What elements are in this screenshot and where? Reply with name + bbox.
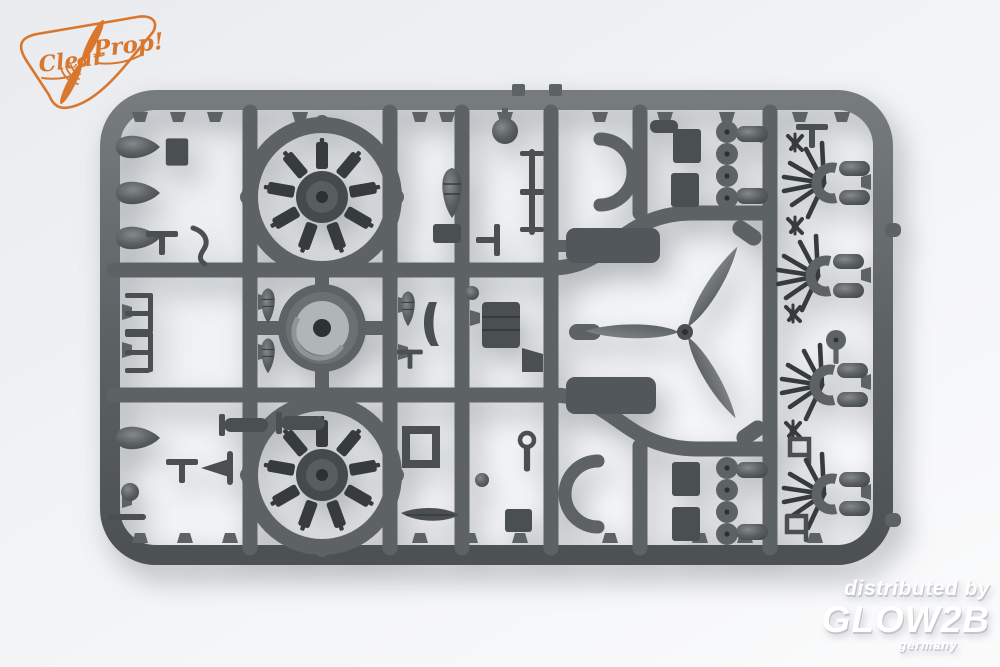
part-cowling-ring [252,266,392,396]
photo-scene: Clear Prop! [0,0,1000,667]
part-capsule [736,524,768,540]
distributor-watermark: distributed by GLOW2B germany [822,578,990,652]
part-square-plate [672,507,700,541]
frame-tab [512,84,525,96]
parts-wheel-column-top [671,121,768,209]
part-jack [786,305,800,322]
parts-right-column [778,124,870,540]
part-wheel-disc [716,121,738,143]
part-capsule [736,462,768,478]
part-square-plate [673,129,701,163]
part-jack [788,134,802,151]
part-teardrop-tank [116,227,160,249]
part-capsule [736,188,768,204]
part-disc-on-stem [826,330,846,364]
part-wheel-disc [716,523,738,545]
part-key-lever [520,433,534,471]
part-square-plate [671,173,699,207]
part-disc-on-stem [492,108,518,144]
part-wedge [522,348,543,372]
part-teardrop-tank [116,136,160,158]
part-exhaust-spider [782,345,868,419]
parts-wheel-column-bottom [672,457,768,545]
part-wheel-disc [716,479,738,501]
part-rod [108,514,146,520]
part-ball-peg [121,483,139,501]
part-curved-rod [193,228,206,264]
part-wheel-disc [716,457,738,479]
part-e-rail [125,293,153,334]
frame-tab [549,84,562,96]
part-t-bracket [476,224,500,256]
part-wheel-disc [716,165,738,187]
watermark-country: germany [822,639,990,652]
part-cowl-panels [553,228,660,414]
part-small-bomb [401,291,415,326]
part-ball-peg [475,473,489,487]
part-e-rail [125,332,153,373]
part-cowl-flap [424,302,439,346]
part-teardrop-tank [116,182,160,204]
part-small-bomb [261,338,275,373]
part-exhaust-spider [784,143,870,217]
parts-top-left [116,136,206,264]
part-wheel-disc [716,501,738,523]
part-wheel-disc [716,187,738,209]
watermark-brand: GLOW2B [822,601,990,638]
part-box [505,509,532,532]
part-hull-fairing [401,508,459,521]
part-half-ring-right [565,461,598,527]
part-t-bracket [166,459,198,483]
part-small-plate [166,138,188,165]
parts-bottom-middle [401,426,598,532]
part-jack [788,217,802,234]
part-half-ring-left [600,139,633,205]
part-wheel-disc [716,143,738,165]
part-square-plate [672,462,700,496]
watermark-distributed-by: distributed by [822,578,990,599]
part-small-bomb [261,288,275,323]
part-capsule [736,126,768,142]
frame-peg [885,513,901,527]
part-t-bracket [397,350,423,369]
part-radial-engine-top [240,115,404,279]
part-exhaust-spider [778,236,864,310]
part-box [433,224,461,243]
part-jack [786,421,800,438]
part-chair-bracket [787,516,806,540]
part-grooved-plate [482,302,520,348]
part-square-frame [402,426,440,468]
part-teardrop-tank [116,427,160,449]
part-spinner-cone [201,451,233,485]
sprue-photo [0,0,1000,667]
frame-peg [885,223,901,237]
part-ball-peg [465,286,479,300]
part-h-rail [520,149,544,235]
